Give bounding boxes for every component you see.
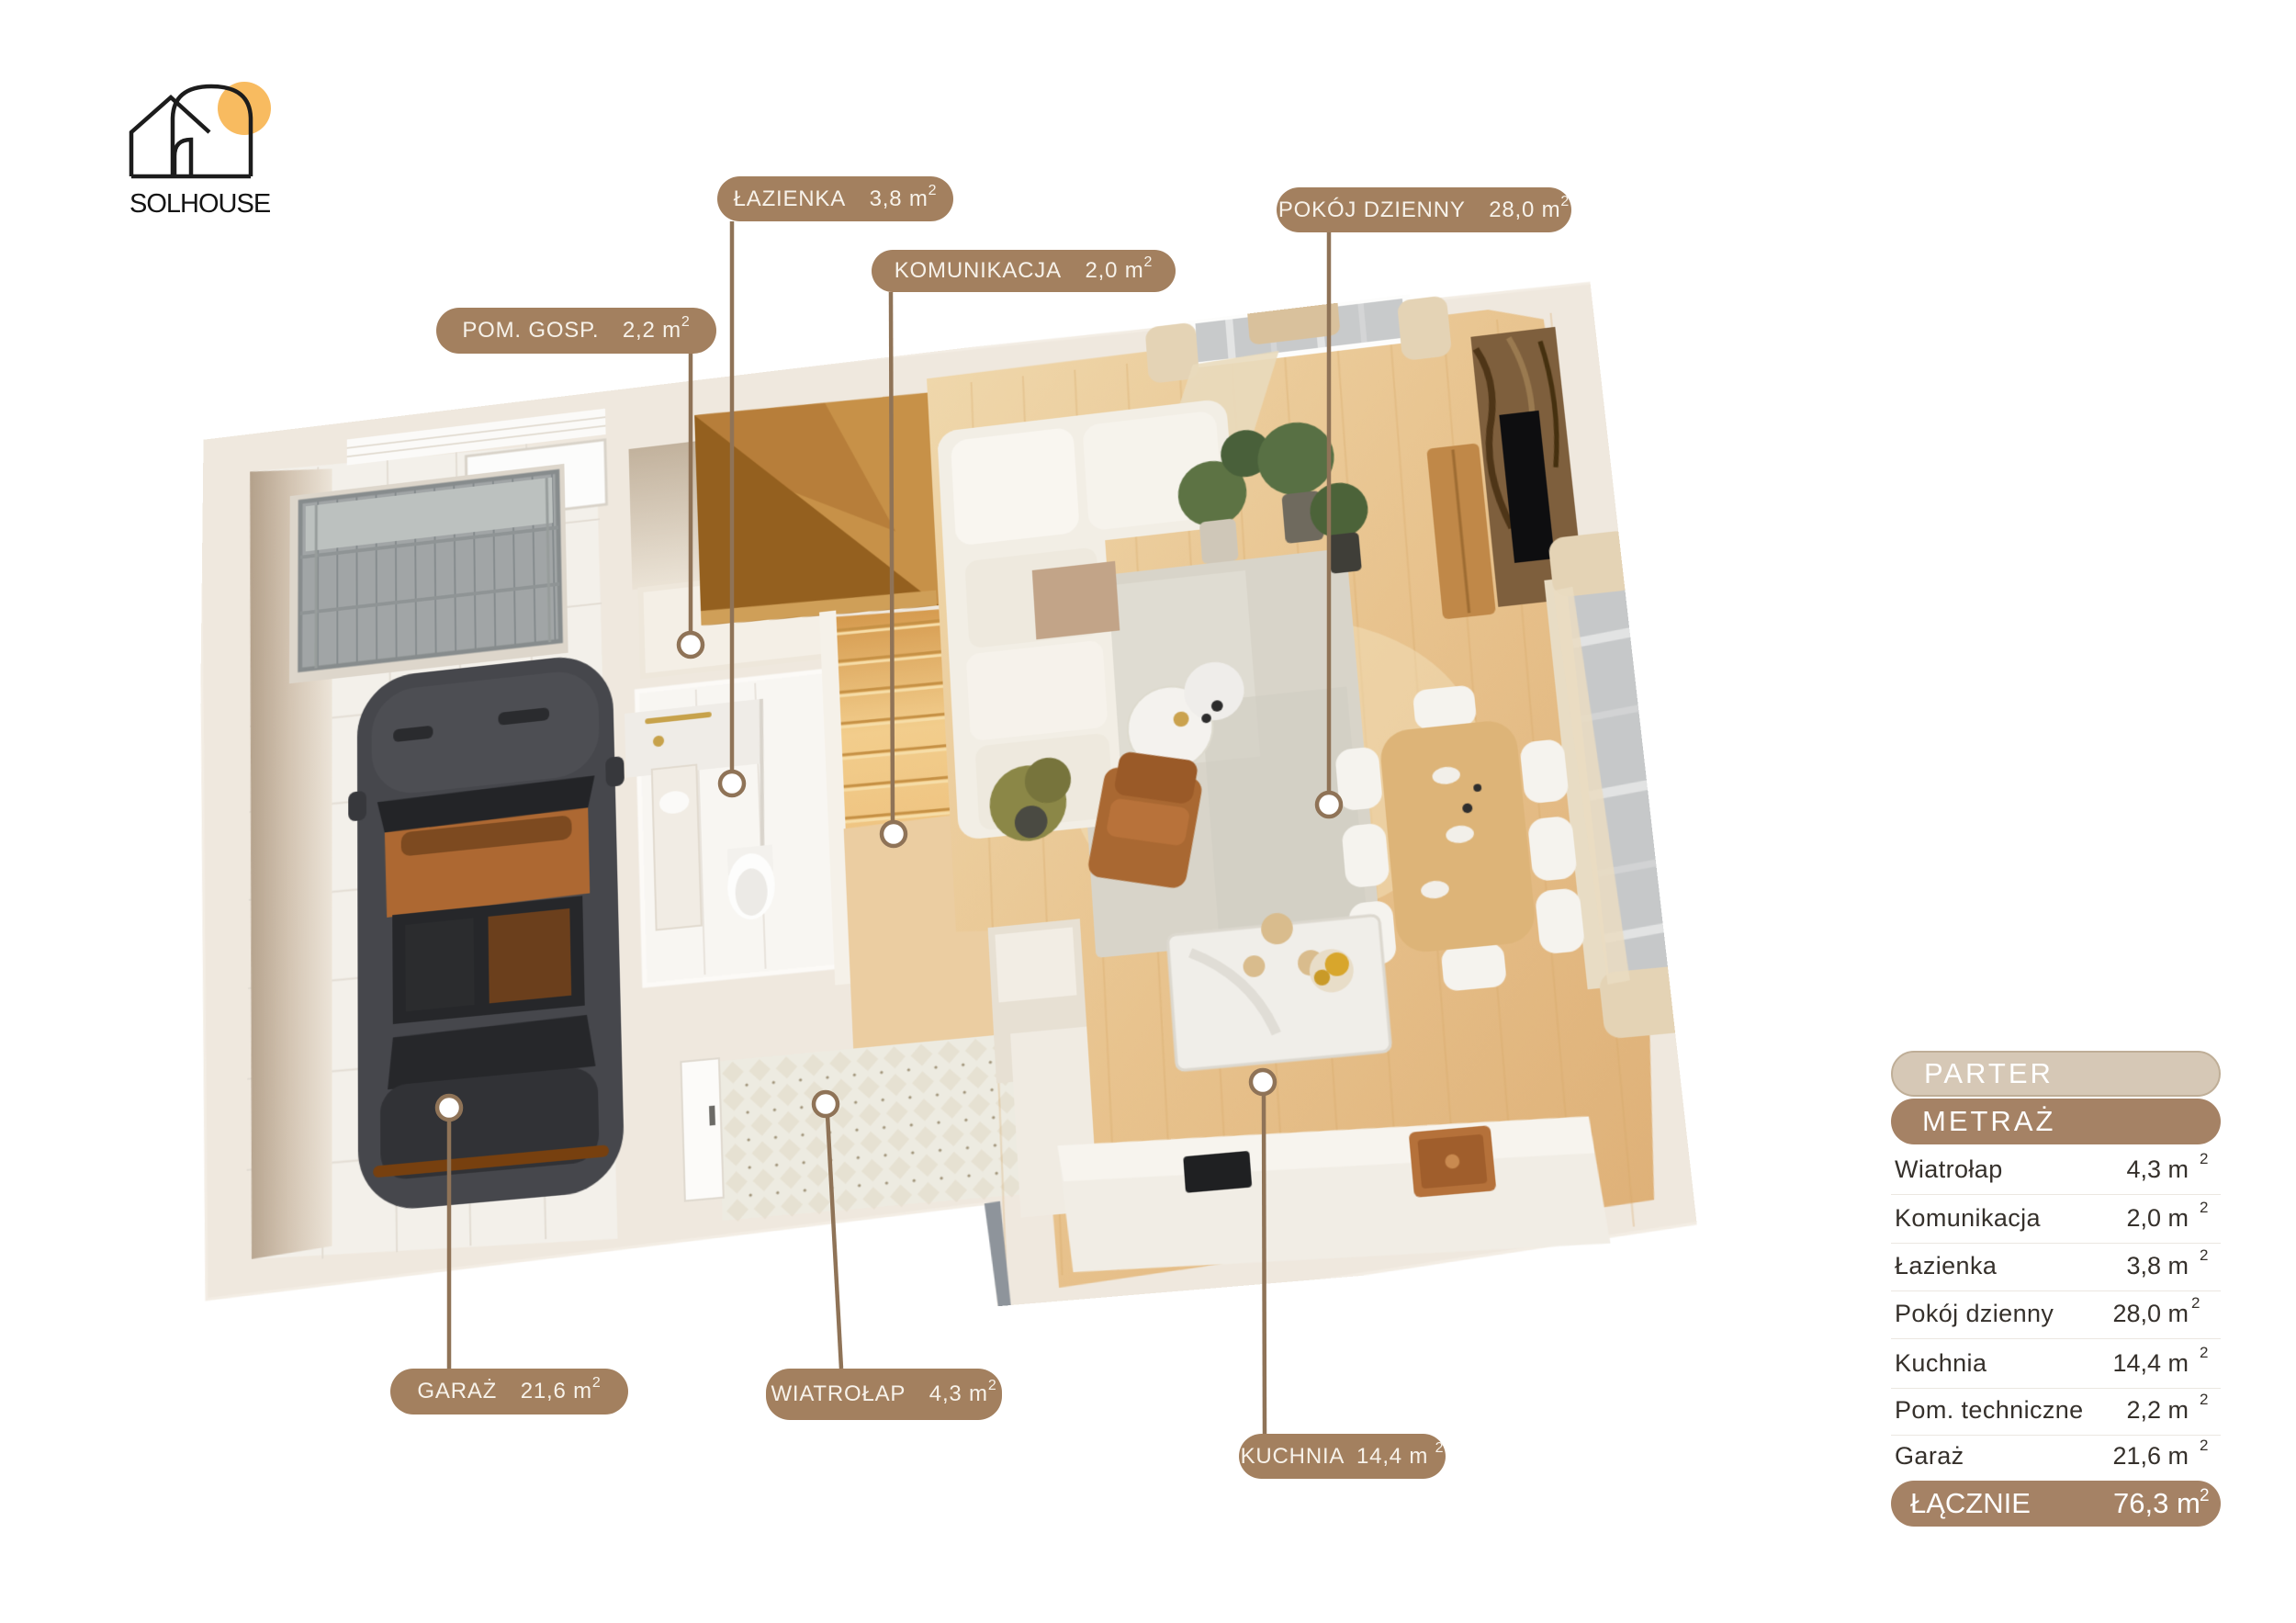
svg-text:SOLHOUSE: SOLHOUSE: [129, 189, 271, 219]
